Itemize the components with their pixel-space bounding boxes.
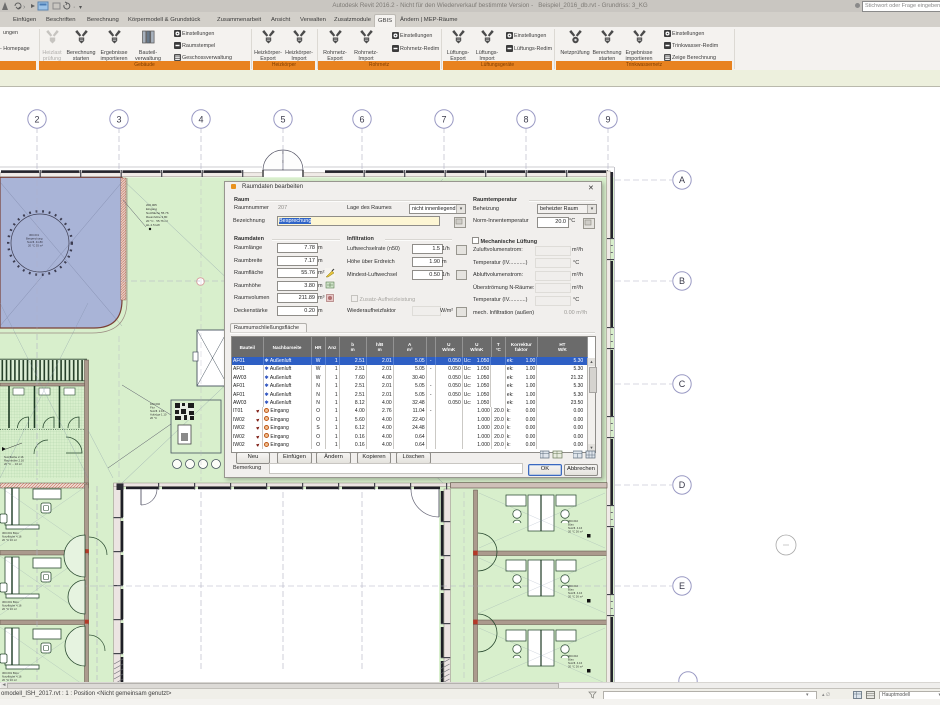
svg-text:D: D bbox=[679, 480, 686, 490]
svg-text:20 °C 26 m²: 20 °C 26 m² bbox=[568, 595, 583, 599]
svg-text:›: › bbox=[23, 4, 26, 11]
svg-text:20 °C 16 m²: 20 °C 16 m² bbox=[2, 538, 17, 542]
svg-text:20 °C 55 m²: 20 °C 55 m² bbox=[28, 244, 43, 248]
svg-text:5: 5 bbox=[280, 114, 285, 124]
svg-text:C: C bbox=[679, 379, 686, 389]
svg-text:20 °C 26 m²: 20 °C 26 m² bbox=[568, 530, 583, 534]
svg-text:B: B bbox=[679, 276, 685, 286]
svg-text:2: 2 bbox=[34, 114, 39, 124]
svg-text:20 °C ... 16 m²: 20 °C ... 16 m² bbox=[4, 462, 22, 466]
svg-text:9: 9 bbox=[605, 114, 610, 124]
svg-text:6: 6 bbox=[359, 114, 364, 124]
svg-text:8: 8 bbox=[523, 114, 528, 124]
svg-text:HL 2.5 kW: HL 2.5 kW bbox=[146, 223, 160, 227]
svg-text:20 °C 26 m²: 20 °C 26 m² bbox=[568, 665, 583, 669]
svg-text:3: 3 bbox=[116, 114, 121, 124]
svg-text:7: 7 bbox=[441, 114, 446, 124]
svg-text:A: A bbox=[679, 175, 685, 185]
svg-text:E: E bbox=[679, 581, 685, 591]
svg-text:20 °C: 20 °C bbox=[150, 416, 157, 420]
svg-text:20 °C 16 m²: 20 °C 16 m² bbox=[2, 607, 17, 611]
svg-text:·: · bbox=[73, 4, 75, 11]
svg-text:4: 4 bbox=[198, 114, 203, 124]
svg-text:▾: ▾ bbox=[79, 5, 82, 11]
